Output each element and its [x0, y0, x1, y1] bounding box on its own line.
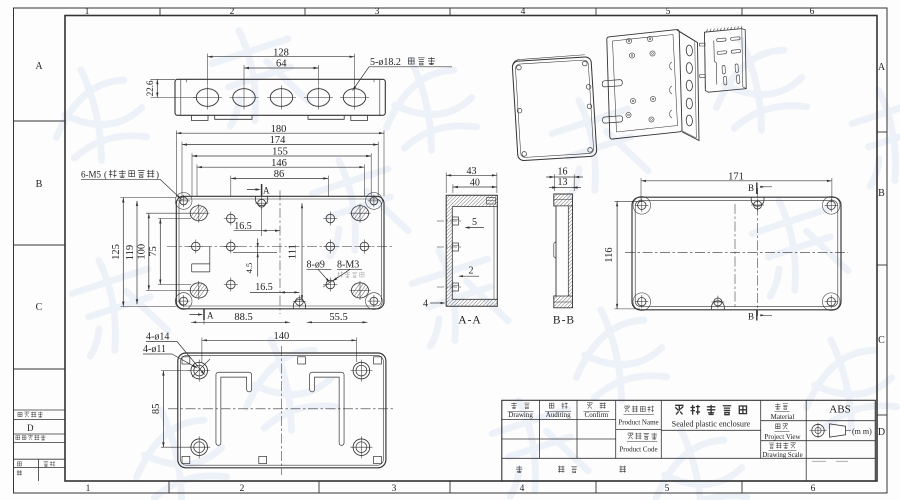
svg-text:A: A	[35, 61, 43, 72]
svg-text:4: 4	[423, 298, 428, 309]
svg-text:5: 5	[665, 484, 670, 494]
svg-text:85: 85	[151, 404, 162, 415]
svg-text:174: 174	[270, 135, 287, 146]
svg-text:Drawing Scale: Drawing Scale	[762, 452, 802, 459]
svg-text:Product Name: Product Name	[618, 419, 658, 427]
svg-text:B: B	[748, 183, 754, 193]
svg-text:3: 3	[392, 484, 397, 494]
svg-text:Drawing: Drawing	[508, 411, 533, 419]
svg-text:2: 2	[230, 7, 235, 17]
svg-text:88.5: 88.5	[234, 312, 252, 323]
svg-text:16: 16	[558, 167, 568, 178]
svg-text:A-A: A-A	[458, 315, 481, 327]
svg-text:B: B	[36, 179, 43, 190]
svg-text:4-ø14: 4-ø14	[146, 332, 169, 343]
svg-text:4: 4	[520, 484, 525, 494]
svg-text:55.5: 55.5	[329, 312, 347, 323]
svg-text:B-B: B-B	[553, 315, 575, 327]
svg-text:16.5: 16.5	[234, 221, 252, 232]
svg-text:Confirm: Confirm	[585, 411, 609, 419]
svg-text:B: B	[748, 312, 754, 322]
svg-text:140: 140	[274, 331, 290, 342]
svg-text:2: 2	[240, 484, 245, 494]
svg-text:B: B	[878, 188, 885, 199]
svg-text:C: C	[36, 302, 43, 313]
svg-text:155: 155	[272, 147, 288, 158]
svg-text:(: (	[104, 170, 107, 180]
svg-text:5-ø18.2: 5-ø18.2	[370, 57, 401, 68]
svg-text:D: D	[878, 427, 885, 438]
svg-text:A: A	[263, 186, 270, 196]
svg-text:43: 43	[467, 166, 477, 177]
svg-text:75: 75	[148, 246, 159, 257]
svg-text:Auditing: Auditing	[546, 411, 571, 419]
svg-text:3: 3	[375, 7, 380, 17]
svg-text:): )	[156, 170, 159, 180]
svg-text:13: 13	[558, 177, 568, 188]
svg-text:5: 5	[666, 7, 671, 17]
svg-text:4-ø11: 4-ø11	[143, 344, 166, 355]
svg-text:6: 6	[811, 484, 816, 494]
svg-text:6-M5: 6-M5	[81, 170, 101, 180]
svg-text:100: 100	[137, 244, 148, 260]
svg-text:40: 40	[470, 178, 480, 189]
svg-text:4.5: 4.5	[244, 263, 254, 274]
svg-text:Sealed plastic enclosure: Sealed plastic enclosure	[672, 420, 751, 429]
svg-text:22.6: 22.6	[145, 80, 155, 96]
svg-text:8-M3: 8-M3	[337, 259, 359, 270]
svg-text:6: 6	[810, 7, 815, 17]
svg-text:1: 1	[85, 7, 90, 17]
svg-text:5: 5	[472, 217, 477, 228]
svg-text:180: 180	[271, 124, 287, 135]
svg-text:64: 64	[276, 59, 287, 70]
svg-text:146: 146	[271, 158, 287, 169]
svg-text:A: A	[878, 62, 886, 73]
svg-text:(m m): (m m)	[852, 427, 872, 436]
svg-text:1: 1	[86, 484, 91, 494]
svg-text:D: D	[27, 423, 34, 433]
svg-text:116: 116	[604, 247, 615, 262]
svg-text:ABS: ABS	[829, 404, 850, 416]
svg-text:128: 128	[273, 47, 289, 58]
svg-text:4: 4	[521, 7, 526, 17]
svg-text:2: 2	[469, 265, 474, 276]
svg-text:C: C	[878, 335, 885, 346]
svg-text:Project View: Project View	[764, 433, 801, 441]
svg-text:171: 171	[728, 171, 744, 182]
svg-text:8-ø9: 8-ø9	[307, 259, 325, 270]
svg-text:16.5: 16.5	[255, 282, 273, 293]
svg-text:86: 86	[274, 169, 285, 180]
svg-text:111: 111	[288, 244, 299, 259]
svg-text:119: 119	[125, 245, 136, 260]
svg-text:Material: Material	[771, 413, 795, 421]
svg-text:125: 125	[111, 244, 122, 260]
svg-text:A: A	[207, 311, 214, 321]
svg-text:Product Code: Product Code	[619, 446, 657, 454]
